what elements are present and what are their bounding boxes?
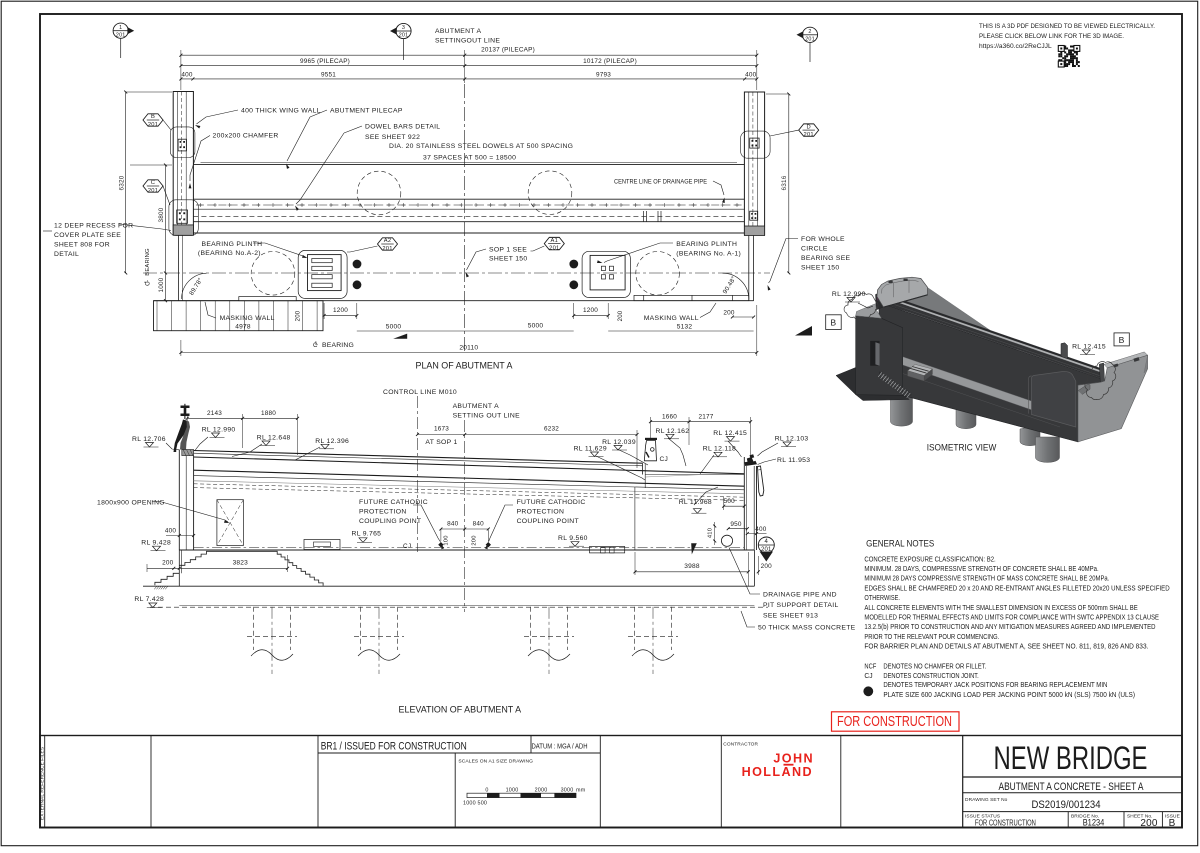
svg-text:1200: 1200 bbox=[333, 307, 348, 314]
svg-text:PROTECTION: PROTECTION bbox=[517, 509, 565, 516]
svg-text:RL 11.953: RL 11.953 bbox=[777, 457, 810, 464]
svg-text:RL 11.629: RL 11.629 bbox=[574, 446, 607, 453]
svg-text:DATUM : MGA / ADH: DATUM : MGA / ADH bbox=[532, 744, 588, 751]
svg-text:CONTROL LINE M010: CONTROL LINE M010 bbox=[383, 389, 457, 396]
svg-text:400: 400 bbox=[181, 72, 193, 79]
svg-text:L: L bbox=[315, 341, 318, 347]
svg-text:RL 9.428: RL 9.428 bbox=[141, 540, 171, 547]
svg-text:DS2019/001234: DS2019/001234 bbox=[1032, 799, 1101, 811]
svg-text:CONCRETE EXPOSURE CLASSIFICATI: CONCRETE EXPOSURE CLASSIFICATION: B2. bbox=[864, 556, 995, 563]
svg-text:950: 950 bbox=[730, 521, 742, 528]
svg-text:DETAIL: DETAIL bbox=[54, 251, 79, 258]
svg-text:410: 410 bbox=[708, 528, 714, 538]
svg-text:1880: 1880 bbox=[261, 410, 276, 417]
svg-text:200x200 CHAMFER: 200x200 CHAMFER bbox=[213, 133, 279, 140]
svg-text:201: 201 bbox=[805, 37, 815, 43]
svg-text:CJ: CJ bbox=[403, 543, 411, 550]
svg-text:https://a360.co/2ReCJJL: https://a360.co/2ReCJJL bbox=[979, 43, 1052, 50]
svg-text:B: B bbox=[1119, 335, 1125, 345]
svg-text:DENOTES CONSTRUCTION JOINT.: DENOTES CONSTRUCTION JOINT. bbox=[883, 673, 978, 680]
svg-text:2143: 2143 bbox=[207, 410, 222, 417]
svg-text:ABUTMENT PILECAP: ABUTMENT PILECAP bbox=[330, 108, 403, 115]
svg-text:B1234: B1234 bbox=[1083, 817, 1105, 827]
svg-text:4978: 4978 bbox=[235, 324, 251, 331]
svg-text:PRIOR TO THE RELEVANT POUR COM: PRIOR TO THE RELEVANT POUR COMMENCING. bbox=[864, 634, 999, 641]
svg-text:COUPLING POINT: COUPLING POINT bbox=[359, 518, 421, 525]
svg-text:MINIMUM. 28 DAYS, COMPRESSIVE: MINIMUM. 28 DAYS, COMPRESSIVE STRENGTH O… bbox=[864, 566, 1098, 573]
svg-text:3: 3 bbox=[402, 25, 405, 31]
svg-text:BEARING PLINTH: BEARING PLINTH bbox=[202, 241, 263, 248]
svg-text:A1: A1 bbox=[551, 238, 559, 244]
svg-text:SCALES ON A1 SIZE DRAWING: SCALES ON A1 SIZE DRAWING bbox=[458, 759, 533, 765]
svg-text:1000: 1000 bbox=[506, 788, 519, 794]
svg-text:200: 200 bbox=[1140, 818, 1158, 829]
svg-text:OTHERWISE.: OTHERWISE. bbox=[864, 595, 900, 602]
svg-text:SEE SHEET 922: SEE SHEET 922 bbox=[365, 134, 420, 141]
svg-text:RL 7.428: RL 7.428 bbox=[134, 596, 164, 603]
svg-text:FOR WHOLE: FOR WHOLE bbox=[801, 236, 845, 243]
svg-text:12 DEEP RECESS FOR: 12 DEEP RECESS FOR bbox=[54, 223, 133, 230]
svg-text:CIRCLE: CIRCLE bbox=[801, 246, 828, 253]
svg-text:201: 201 bbox=[399, 33, 409, 39]
svg-text:DENOTES NO CHAMFER OR FILLET.: DENOTES NO CHAMFER OR FILLET. bbox=[883, 663, 986, 670]
svg-text:ABUTMENT A: ABUTMENT A bbox=[435, 28, 481, 35]
svg-text:RL 12.990: RL 12.990 bbox=[832, 291, 866, 298]
svg-text:RL 9.560: RL 9.560 bbox=[558, 535, 588, 542]
svg-text:FOR CONSTRUCTION: FOR CONSTRUCTION bbox=[975, 818, 1036, 827]
svg-text:RL 12.396: RL 12.396 bbox=[315, 438, 349, 445]
svg-text:201: 201 bbox=[148, 122, 158, 128]
svg-text:RL 12.118: RL 12.118 bbox=[703, 446, 736, 453]
svg-text:200: 200 bbox=[162, 559, 174, 566]
svg-text:9965 (PILECAP): 9965 (PILECAP) bbox=[300, 58, 350, 65]
svg-text:100: 100 bbox=[444, 535, 450, 545]
svg-text:BEARING: BEARING bbox=[322, 342, 354, 349]
svg-text:A2: A2 bbox=[384, 238, 392, 244]
svg-text:1: 1 bbox=[119, 25, 122, 31]
svg-text:400 THICK WING WALL: 400 THICK WING WALL bbox=[241, 108, 321, 115]
svg-text:9551: 9551 bbox=[321, 72, 336, 79]
svg-text:D: D bbox=[807, 124, 811, 130]
svg-text:DRAINAGE PIPE AND: DRAINAGE PIPE AND bbox=[763, 592, 837, 599]
svg-text:PIT SUPPORT DETAIL: PIT SUPPORT DETAIL bbox=[763, 602, 839, 609]
svg-text:5000: 5000 bbox=[386, 324, 402, 331]
svg-text:RL 12.415: RL 12.415 bbox=[1072, 344, 1106, 351]
svg-text:201: 201 bbox=[804, 132, 814, 138]
svg-text:BEARING: BEARING bbox=[145, 248, 151, 276]
svg-text:2177: 2177 bbox=[698, 414, 713, 421]
svg-text:50 THICK MASS CONCRETE: 50 THICK MASS CONCRETE bbox=[758, 625, 856, 632]
svg-text:201: 201 bbox=[116, 32, 126, 38]
svg-text:PROTECTION: PROTECTION bbox=[359, 509, 407, 516]
svg-text:ABUTMENT A CONCRETE - SHEET A: ABUTMENT A CONCRETE - SHEET A bbox=[999, 781, 1144, 793]
svg-text:RL 12.648: RL 12.648 bbox=[257, 435, 291, 442]
svg-text:ISOMETRIC VIEW: ISOMETRIC VIEW bbox=[927, 443, 997, 453]
svg-text:1800x900 OPENING: 1800x900 OPENING bbox=[97, 499, 165, 506]
svg-text:MODELLED FOR THERMAL EFFECTS A: MODELLED FOR THERMAL EFFECTS AND LIMITS … bbox=[864, 614, 1159, 621]
svg-text:DRAWING SET No: DRAWING SET No bbox=[965, 797, 1008, 803]
svg-text:CONTRACTOR: CONTRACTOR bbox=[723, 742, 758, 748]
svg-text:4: 4 bbox=[765, 539, 769, 545]
svg-text:5000: 5000 bbox=[528, 323, 544, 330]
svg-text:400: 400 bbox=[745, 72, 757, 79]
svg-text:(BEARING No.A-2): (BEARING No.A-2) bbox=[198, 250, 261, 257]
svg-text:1200: 1200 bbox=[583, 307, 598, 314]
svg-text:PLAN OF ABUTMENT A: PLAN OF ABUTMENT A bbox=[416, 361, 514, 371]
svg-text:COUPLING POINT: COUPLING POINT bbox=[517, 518, 579, 525]
svg-text:3988: 3988 bbox=[684, 563, 700, 570]
svg-text:SHEET 808 FOR: SHEET 808 FOR bbox=[54, 242, 110, 249]
svg-text:2: 2 bbox=[808, 29, 811, 35]
svg-text:10172 (PILECAP): 10172 (PILECAP) bbox=[583, 58, 637, 65]
svg-text:6316: 6316 bbox=[781, 175, 788, 190]
svg-text:ABUTMENT A: ABUTMENT A bbox=[453, 403, 499, 410]
svg-text:RL 12.039: RL 12.039 bbox=[602, 439, 636, 446]
svg-text:200: 200 bbox=[296, 310, 302, 321]
svg-text:FUTURE CATHODIC: FUTURE CATHODIC bbox=[517, 499, 586, 506]
svg-text:BR1 / ISSUED FOR CONSTRUCTION: BR1 / ISSUED FOR CONSTRUCTION bbox=[321, 740, 467, 752]
svg-text:FOR BARRIER PLAN AND DETAILS A: FOR BARRIER PLAN AND DETAILS AT ABUTMENT… bbox=[864, 644, 1148, 651]
svg-text:DOWEL BARS DETAIL: DOWEL BARS DETAIL bbox=[365, 124, 440, 131]
svg-text:6320: 6320 bbox=[119, 175, 126, 190]
svg-text:6232: 6232 bbox=[544, 426, 559, 433]
svg-text:DIA. 20 STAINLESS STEEL DOWELS: DIA. 20 STAINLESS STEEL DOWELS AT 500 SP… bbox=[389, 143, 573, 150]
svg-text:13.2.5(b) PRIOR TO CONSTRUCTIO: 13.2.5(b) PRIOR TO CONSTRUCTION AND ANY … bbox=[864, 624, 1155, 631]
svg-text:COVER PLATE SEE: COVER PLATE SEE bbox=[54, 232, 121, 239]
svg-text:RL 12.415: RL 12.415 bbox=[713, 430, 747, 437]
svg-text:201: 201 bbox=[382, 246, 392, 252]
svg-text:200: 200 bbox=[723, 310, 735, 317]
svg-text:500: 500 bbox=[724, 498, 736, 505]
svg-text:CENTRE LINE OF DRAINAGE PIPE: CENTRE LINE OF DRAINAGE PIPE bbox=[614, 179, 707, 186]
svg-text:SHEET 150: SHEET 150 bbox=[801, 265, 839, 272]
svg-text:400: 400 bbox=[165, 528, 177, 535]
svg-text:840: 840 bbox=[473, 520, 485, 527]
svg-text:400: 400 bbox=[755, 526, 767, 533]
svg-text:9793: 9793 bbox=[596, 72, 611, 79]
svg-text:1673: 1673 bbox=[434, 426, 449, 433]
svg-text:NCF: NCF bbox=[864, 663, 876, 670]
svg-text:PLEASE CLICK BELOW LINK FOR TH: PLEASE CLICK BELOW LINK FOR THE 3D IMAGE… bbox=[979, 33, 1124, 40]
svg-text:200: 200 bbox=[618, 310, 624, 321]
svg-text:RL 12.103: RL 12.103 bbox=[775, 435, 809, 442]
svg-text:20110: 20110 bbox=[459, 344, 478, 351]
svg-text:EXTERNAL REFERENCE FILES: EXTERNAL REFERENCE FILES bbox=[40, 747, 46, 820]
svg-text:PLATE SIZE 600 JACKING LOAD PE: PLATE SIZE 600 JACKING LOAD PER JACKING … bbox=[883, 692, 1135, 699]
svg-text:RL 12.990: RL 12.990 bbox=[202, 427, 236, 434]
svg-text:BEARING SEE: BEARING SEE bbox=[801, 255, 851, 262]
svg-text:ALL CONCRETE ELEMENTS WITH THE: ALL CONCRETE ELEMENTS WITH THE SMALLEST … bbox=[864, 605, 1138, 612]
svg-text:THIS IS A 3D PDF DESIGNED TO B: THIS IS A 3D PDF DESIGNED TO BE VIEWED E… bbox=[979, 23, 1155, 30]
svg-text:MASKING WALL: MASKING WALL bbox=[220, 315, 275, 322]
svg-text:3000: 3000 bbox=[561, 788, 574, 794]
svg-text:200: 200 bbox=[472, 535, 478, 545]
svg-text:SETTINGOUT LINE: SETTINGOUT LINE bbox=[435, 38, 500, 45]
svg-text:GENERAL NOTES: GENERAL NOTES bbox=[866, 538, 934, 549]
svg-text:B: B bbox=[1169, 818, 1176, 829]
svg-text:RL 12.706: RL 12.706 bbox=[132, 436, 166, 443]
svg-text:(BEARING No. A-1): (BEARING No. A-1) bbox=[676, 250, 741, 257]
svg-text:C: C bbox=[151, 180, 155, 186]
svg-text:CJ: CJ bbox=[660, 456, 669, 463]
svg-text:1000 500: 1000 500 bbox=[463, 801, 487, 807]
svg-text:NEW BRIDGE: NEW BRIDGE bbox=[994, 740, 1148, 776]
svg-text:1000: 1000 bbox=[158, 277, 165, 292]
svg-text:MINIMUM 28 DAYS COMPRESSIVE ST: MINIMUM 28 DAYS COMPRESSIVE STRENGTH OF … bbox=[864, 576, 1109, 583]
svg-text:HOLLAND: HOLLAND bbox=[742, 765, 813, 779]
svg-text:CJ: CJ bbox=[864, 673, 872, 680]
svg-text:5132: 5132 bbox=[677, 323, 693, 330]
svg-text:SHEET 150: SHEET 150 bbox=[489, 256, 527, 263]
svg-text:840: 840 bbox=[447, 520, 459, 527]
svg-text:ELEVATION OF ABUTMENT A: ELEVATION OF ABUTMENT A bbox=[399, 705, 522, 715]
svg-text:mm: mm bbox=[576, 788, 586, 794]
svg-text:SETTING OUT LINE: SETTING OUT LINE bbox=[453, 413, 521, 420]
svg-text:1660: 1660 bbox=[662, 414, 677, 421]
svg-text:EDGES SHALL BE CHAMFERED 20 x: EDGES SHALL BE CHAMFERED 20 x 20 AND RE-… bbox=[864, 585, 1169, 592]
svg-text:201: 201 bbox=[148, 188, 158, 194]
svg-text:2000: 2000 bbox=[535, 788, 548, 794]
svg-text:20137 (PILECAP): 20137 (PILECAP) bbox=[481, 47, 535, 54]
svg-text:BEARING PLINTH: BEARING PLINTH bbox=[676, 241, 737, 248]
svg-text:RL 12.162: RL 12.162 bbox=[656, 428, 690, 435]
svg-text:SOP 1 SEE: SOP 1 SEE bbox=[489, 247, 527, 254]
svg-text:200: 200 bbox=[761, 563, 773, 570]
svg-text:201: 201 bbox=[549, 245, 559, 251]
svg-text:3823: 3823 bbox=[233, 559, 249, 566]
svg-text:3800: 3800 bbox=[158, 207, 165, 222]
svg-text:RL 11.968: RL 11.968 bbox=[679, 499, 712, 506]
svg-text:B: B bbox=[830, 318, 836, 328]
svg-text:RL 9.765: RL 9.765 bbox=[352, 530, 382, 537]
svg-text:L: L bbox=[144, 280, 150, 283]
svg-text:JOHN: JOHN bbox=[773, 752, 814, 766]
svg-text:B: B bbox=[151, 114, 155, 120]
svg-text:DENOTES TEMPORARY JACK POSITIO: DENOTES TEMPORARY JACK POSITIONS FOR BEA… bbox=[883, 682, 1107, 689]
svg-text:FOR CONSTRUCTION: FOR CONSTRUCTION bbox=[837, 714, 952, 730]
svg-text:SEE SHEET 913: SEE SHEET 913 bbox=[763, 613, 818, 620]
svg-text:AT SOP 1: AT SOP 1 bbox=[425, 439, 457, 446]
svg-text:MASKING WALL: MASKING WALL bbox=[644, 315, 699, 322]
svg-text:37 SPACES AT 500 = 18500: 37 SPACES AT 500 = 18500 bbox=[423, 154, 516, 161]
svg-text:0: 0 bbox=[485, 788, 488, 794]
